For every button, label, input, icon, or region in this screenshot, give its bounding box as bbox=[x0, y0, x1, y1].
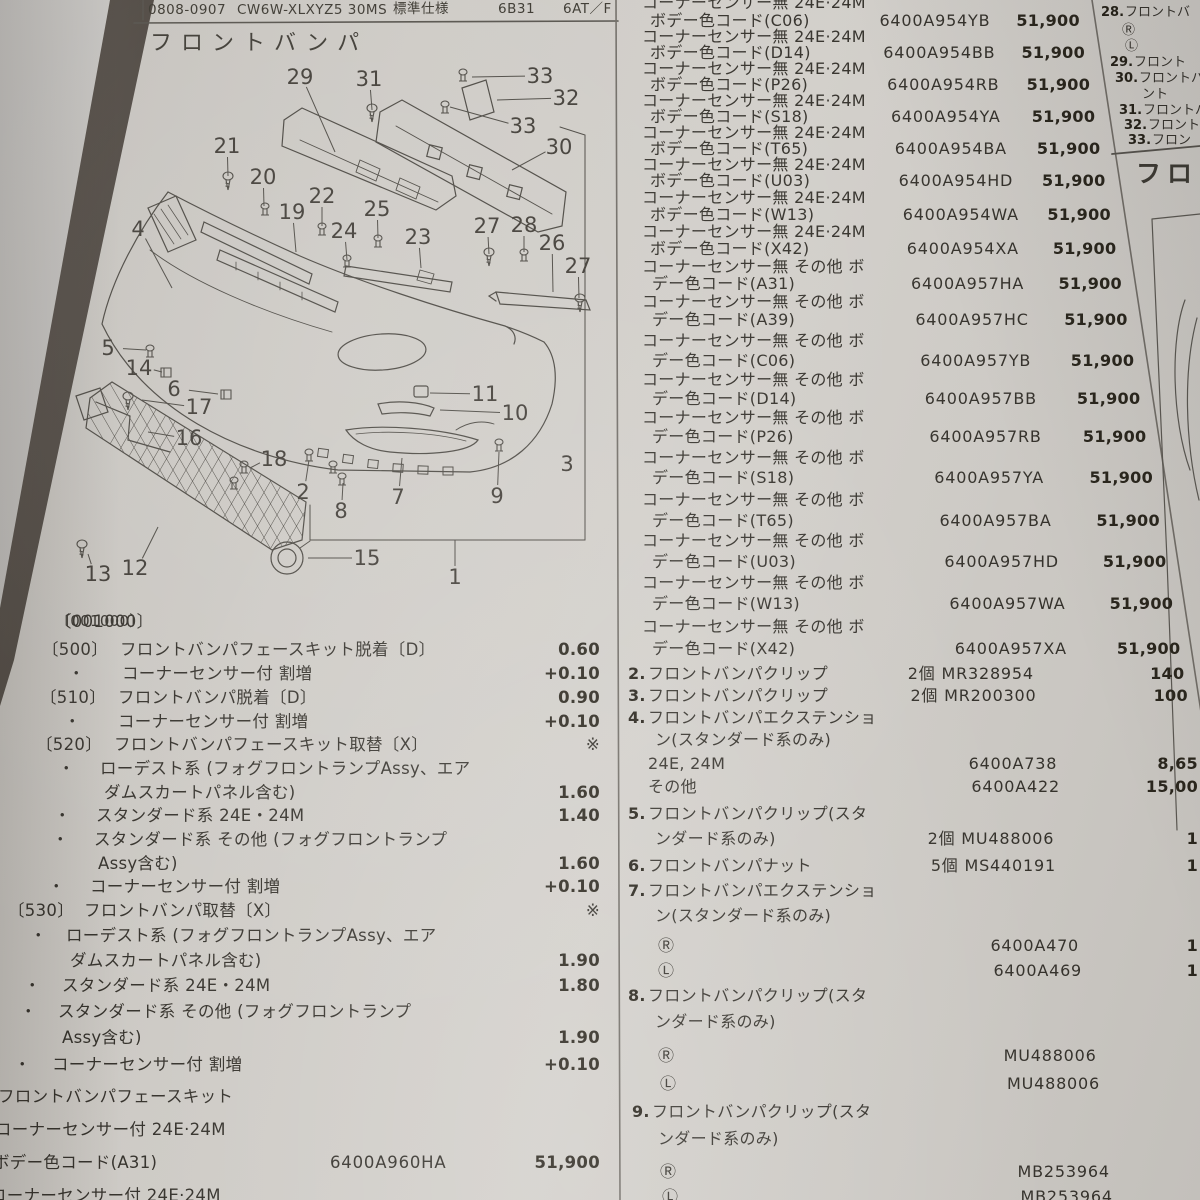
callout-leader-line bbox=[488, 237, 489, 254]
fastener-icon bbox=[161, 368, 171, 377]
fastener-icon bbox=[230, 477, 238, 489]
callout-number-27: 27 bbox=[565, 254, 592, 278]
next-diagram-frame bbox=[1152, 214, 1200, 830]
callout-number-31: 31 bbox=[356, 67, 383, 91]
fastener-icon bbox=[240, 461, 248, 473]
callout-leader-line bbox=[497, 98, 551, 100]
callout-leader-line bbox=[578, 277, 579, 298]
callout-leader-line bbox=[552, 254, 553, 292]
callout-number-6: 6 bbox=[167, 377, 180, 401]
diagram-linework bbox=[40, 0, 1200, 1200]
fastener-icon bbox=[221, 390, 231, 399]
fastener-icon bbox=[329, 461, 337, 473]
callout-number-25: 25 bbox=[364, 197, 391, 221]
callout-number-32: 32 bbox=[553, 86, 580, 110]
callout-leader-line bbox=[450, 107, 508, 123]
fastener-icon bbox=[459, 69, 467, 81]
catalog-photo: 0808-0907 CW6W-XLXYZ5 30MS 標準仕様 6B31 6AT… bbox=[0, 0, 1200, 1200]
callout-number-33: 33 bbox=[510, 114, 537, 138]
callout-leader-line bbox=[306, 460, 309, 481]
callout-leader-line bbox=[342, 483, 343, 500]
callout-leader-line bbox=[472, 76, 525, 77]
fastener-icon bbox=[495, 439, 503, 451]
column-divider bbox=[616, 0, 620, 1200]
callout-number-22: 22 bbox=[309, 184, 336, 208]
callout-number-17: 17 bbox=[186, 395, 213, 419]
callout-leader-line bbox=[250, 463, 260, 468]
callout-number-4: 4 bbox=[131, 217, 144, 241]
callout-number-8: 8 bbox=[334, 499, 347, 523]
callout-number-5: 5 bbox=[101, 336, 114, 360]
callout-number-28: 28 bbox=[511, 213, 538, 237]
callout-number-7: 7 bbox=[391, 485, 404, 509]
front-bumper-exploded-diagram: 2931333233302120221924252327282627451461… bbox=[0, 0, 1200, 1200]
callout-number-18: 18 bbox=[261, 447, 288, 471]
callout-leader-line bbox=[512, 152, 546, 170]
callout-number-19: 19 bbox=[279, 200, 306, 224]
callout-leader-line bbox=[346, 242, 347, 260]
callout-leader-line bbox=[293, 223, 296, 252]
fastener-icon bbox=[77, 540, 87, 558]
diagram-callouts: 2931333233302120221924252327282627451461… bbox=[85, 64, 592, 589]
fastener-icon bbox=[338, 473, 346, 485]
callout-leader-line bbox=[370, 90, 372, 110]
callout-leader-line bbox=[498, 452, 499, 485]
callout-number-27: 27 bbox=[474, 214, 501, 238]
callout-number-14: 14 bbox=[126, 356, 153, 380]
callout-leader-line bbox=[227, 157, 228, 176]
callout-number-29: 29 bbox=[287, 65, 314, 89]
callout-number-3: 3 bbox=[560, 452, 573, 476]
callout-number-10: 10 bbox=[502, 401, 529, 425]
callout-leader-line bbox=[189, 390, 218, 394]
callout-leader-line bbox=[430, 393, 470, 394]
callout-number-20: 20 bbox=[250, 165, 277, 189]
callout-leader-line bbox=[148, 432, 174, 436]
callout-leader-line bbox=[419, 248, 421, 268]
callout-leader-line bbox=[306, 87, 335, 152]
fastener-icon bbox=[305, 449, 313, 461]
callout-leader-line bbox=[123, 349, 146, 350]
callout-number-21: 21 bbox=[214, 134, 241, 158]
callout-number-13: 13 bbox=[85, 562, 112, 586]
right-column-divider bbox=[1092, 0, 1200, 810]
callout-number-11: 11 bbox=[472, 382, 499, 406]
callout-number-9: 9 bbox=[490, 484, 503, 508]
callout-number-16: 16 bbox=[176, 426, 203, 450]
callout-number-23: 23 bbox=[405, 225, 432, 249]
callout-number-15: 15 bbox=[354, 546, 381, 570]
callout-number-26: 26 bbox=[539, 231, 566, 255]
callout-number-24: 24 bbox=[331, 219, 358, 243]
callout-number-33: 33 bbox=[527, 64, 554, 88]
callout-number-30: 30 bbox=[546, 135, 573, 159]
callout-number-12: 12 bbox=[122, 556, 149, 580]
callout-number-1: 1 bbox=[448, 565, 461, 589]
callout-leader-line bbox=[145, 239, 172, 288]
callout-number-2: 2 bbox=[296, 480, 309, 504]
callout-leader-line bbox=[440, 410, 500, 413]
callout-leader-line bbox=[142, 527, 158, 558]
fastener-icon bbox=[441, 101, 449, 113]
fastener-icon bbox=[261, 203, 269, 215]
next-section-rule bbox=[1112, 146, 1200, 154]
